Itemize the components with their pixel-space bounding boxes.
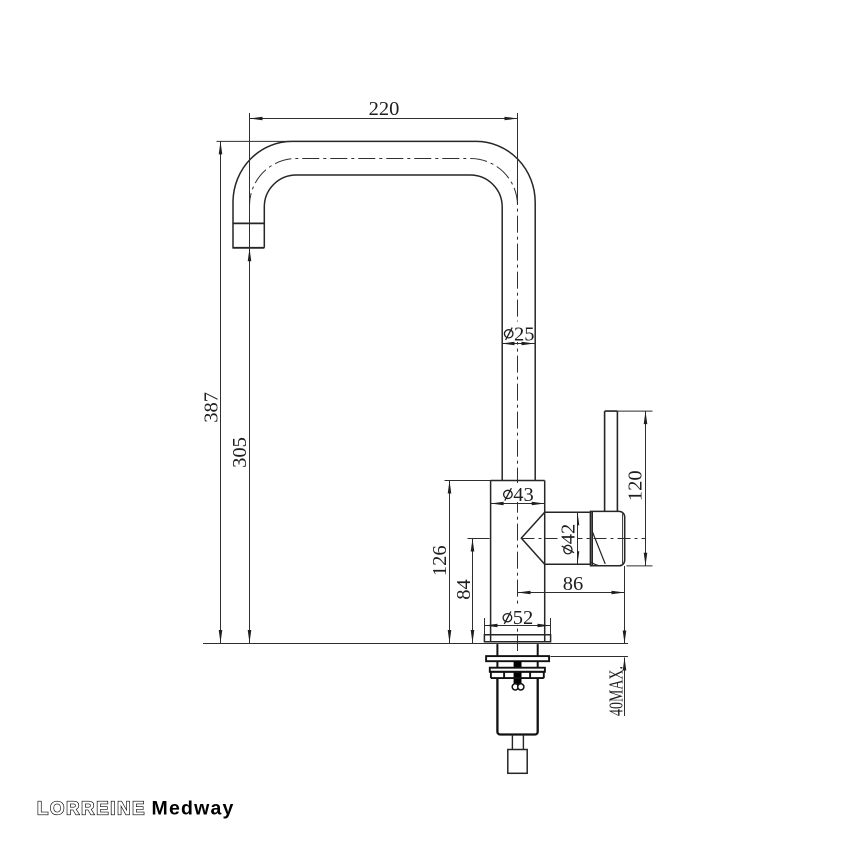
svg-text:25: 25 xyxy=(514,323,535,345)
svg-text:305: 305 xyxy=(229,437,251,468)
svg-text:220: 220 xyxy=(369,98,400,120)
svg-text:43: 43 xyxy=(513,484,534,506)
svg-text:LORREINE: LORREINE xyxy=(37,798,146,819)
svg-text:84: 84 xyxy=(453,579,475,600)
svg-text:387: 387 xyxy=(200,392,222,423)
svg-text:120: 120 xyxy=(625,470,647,501)
svg-text:42: 42 xyxy=(557,524,579,545)
svg-text:126: 126 xyxy=(429,545,451,576)
svg-text:40MAX.: 40MAX. xyxy=(604,666,627,716)
svg-text:Medway: Medway xyxy=(152,798,235,820)
svg-text:86: 86 xyxy=(563,573,584,595)
svg-text:52: 52 xyxy=(513,607,534,629)
